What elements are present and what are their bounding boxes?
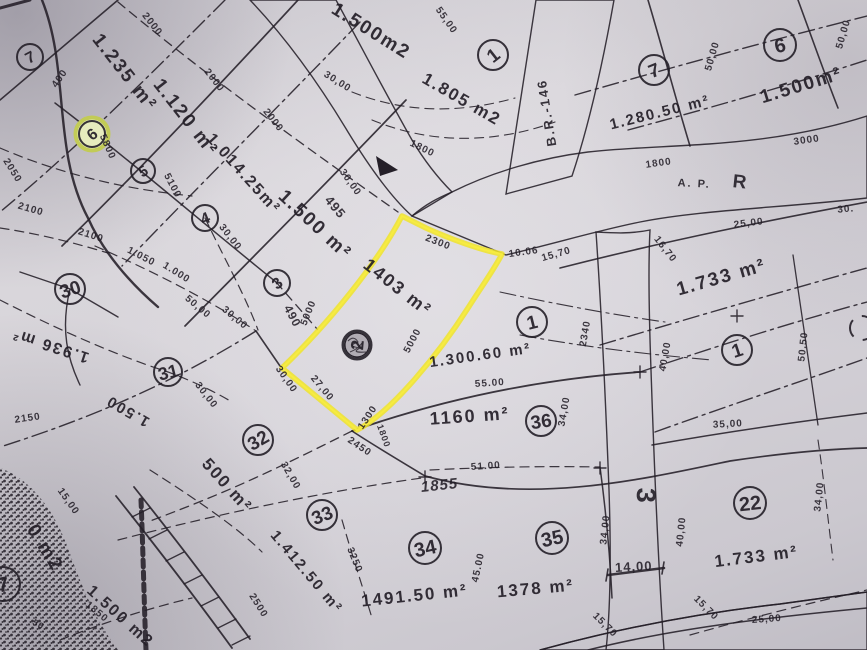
dimension-label: 400 xyxy=(50,67,70,89)
lot-number: 4 xyxy=(198,210,213,229)
area-label: 1378 m² xyxy=(496,576,575,602)
lot-number: 3 xyxy=(269,274,287,293)
lot-number: 1 xyxy=(525,312,541,335)
lot-circle: 30 xyxy=(55,274,85,304)
dimension-label: 15,70 xyxy=(691,594,720,623)
lot-circle: 1 xyxy=(478,40,508,70)
dimension-label: 3250 xyxy=(344,546,364,574)
area-label: 1.500m2 xyxy=(328,0,415,64)
dimension-label: 15,70 xyxy=(540,245,572,264)
dimension-label: 2050 xyxy=(1,157,24,185)
lot-number: 1 xyxy=(729,340,746,363)
lot-number: 5 xyxy=(136,162,152,181)
dimension-label: 1.000 xyxy=(161,260,192,285)
dimension-label: 2100 xyxy=(17,201,45,219)
lot-circle: 36 xyxy=(526,406,556,436)
dimension-label: 40,00 xyxy=(674,516,688,547)
lot-number: 34 xyxy=(412,536,439,562)
lot-circle: 3 xyxy=(264,270,290,296)
lot-circle: 4 xyxy=(192,205,218,231)
area-label: 1.500 m² xyxy=(274,186,356,264)
north-arrow xyxy=(376,156,398,176)
dimension-label: 2450 xyxy=(345,435,373,459)
lot-circle: 34 xyxy=(409,532,441,564)
dimension-label: 3000 xyxy=(793,133,821,148)
dimension-label: 2500 xyxy=(247,592,270,620)
lot-number: 31 xyxy=(156,360,180,384)
dimension-label: 1.050 xyxy=(125,245,157,268)
dimension-label: 5000 xyxy=(299,299,319,327)
lot-circle: 32 xyxy=(243,425,273,456)
lot-circle: 35 xyxy=(536,522,568,554)
road-name-label: 3 xyxy=(631,487,662,505)
dimension-label: 25,00 xyxy=(733,216,764,231)
area-label: 1.280.50 m² xyxy=(608,92,712,133)
area-label: 1491.50 m² xyxy=(360,580,468,610)
dimension-label: 2340 xyxy=(578,320,593,348)
ladder-road-rungs xyxy=(132,508,250,645)
lot-circle: 1 xyxy=(722,335,752,365)
dimension-label: 25,00 xyxy=(751,613,782,626)
lot-circle: 6 xyxy=(764,29,796,61)
scanned-cadastral-map: 7654330312176113632333435227 1.235 m²1.1… xyxy=(0,0,867,650)
lot-circle: 5 xyxy=(131,159,155,183)
dimension-label: 50,00 xyxy=(183,293,213,321)
dimension-label: 51.00 xyxy=(470,460,501,473)
dimension-label: 30,00 xyxy=(192,380,219,410)
lot-circle: 7 xyxy=(17,44,43,70)
lot-number: 36 xyxy=(529,410,553,434)
dimension-label: 1800 xyxy=(375,423,393,449)
lot-circle: 22 xyxy=(734,487,766,519)
lot-number: 2 xyxy=(347,339,368,351)
road-name-label: B.R.-146 xyxy=(534,78,559,148)
lot-circle: 1 xyxy=(517,307,547,337)
road-name-label: R xyxy=(732,171,750,194)
road-name-label: A. P. xyxy=(677,177,711,191)
dimension-label: 55.00 xyxy=(474,377,505,390)
dimension-label: 2000 xyxy=(140,11,165,38)
dimension-label: 10.06 xyxy=(508,245,539,260)
road-labels: B.R.-146A. P.R3 xyxy=(534,78,750,505)
area-label: 1.936 m² xyxy=(10,325,91,366)
area-label: 1.805 m2 xyxy=(419,69,505,129)
dimension-label: 15,00 xyxy=(55,486,81,517)
dimension-label: 34,00 xyxy=(812,481,826,512)
map-canvas: 7654330312176113632333435227 1.235 m²1.1… xyxy=(0,0,867,650)
area-label: 1.235 m² xyxy=(88,30,161,115)
area-label: 1.733 m² xyxy=(674,255,768,301)
dimension-label: 32,00 xyxy=(278,460,303,492)
area-label: 1.014.25m² xyxy=(203,130,284,217)
lot-circle: 33 xyxy=(307,500,337,530)
dimension-label: 30,00 xyxy=(220,304,250,332)
dimension-label: 30,00 xyxy=(337,167,363,198)
lot-circle: 2 xyxy=(343,331,371,359)
area-label: 1.500 xyxy=(103,392,153,430)
dimension-label: 2100 xyxy=(77,226,105,245)
area-label: 1.412.50 m² xyxy=(267,527,346,617)
dimension-label: 2150 xyxy=(14,411,42,426)
lot-circle xyxy=(850,316,867,340)
area-label: 1.733 m² xyxy=(713,542,799,571)
lot-number: 1 xyxy=(483,44,505,67)
dimension-label: 35,00 xyxy=(713,418,744,431)
lot-circle: 31 xyxy=(154,358,182,386)
dimension-label: 5100 xyxy=(161,172,183,200)
lot-number: 6 xyxy=(773,34,788,58)
dimension-label: 5000 xyxy=(402,327,424,355)
dimension-label: 34,00 xyxy=(557,396,573,427)
dimension-label: 495 xyxy=(322,193,349,222)
dimension-label: 30. xyxy=(837,203,855,215)
dimension-label: 14,00 xyxy=(615,558,653,575)
dimension-label: 30,00 xyxy=(322,69,353,94)
dimension-label: 55,00 xyxy=(433,5,459,36)
dimension-label: 16,70 xyxy=(651,234,678,264)
road-vertical-band xyxy=(596,230,664,650)
lot-number: 22 xyxy=(738,492,762,516)
dimension-label: 1855 xyxy=(420,475,459,496)
lot-number: 35 xyxy=(539,526,565,552)
area-label: 1.500m² xyxy=(758,63,845,108)
dimension-label: 1800 xyxy=(645,156,673,171)
area-label: 1403 m² xyxy=(360,254,436,320)
dimension-label: 50,00 xyxy=(703,40,722,72)
area-label: 1160 m² xyxy=(429,403,510,429)
dimension-label: 45.00 xyxy=(470,552,487,584)
lot-number: 7 xyxy=(23,48,39,67)
